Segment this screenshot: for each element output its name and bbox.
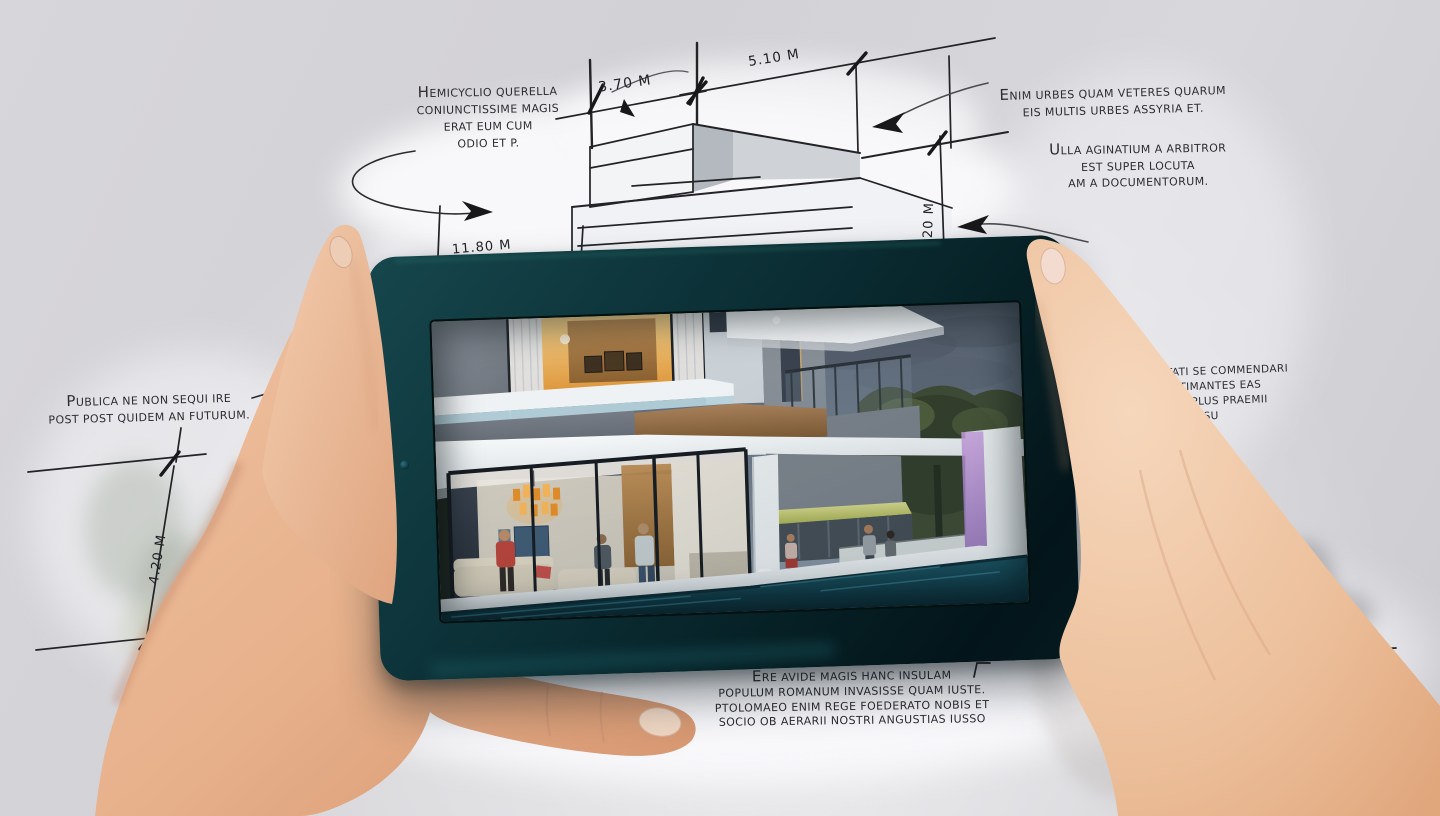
right-hand — [1027, 239, 1440, 816]
hands-front-layer — [0, 0, 1440, 816]
left-thumb — [262, 225, 397, 604]
photo-hands-holding-tablet-architecture-sketch: HEMICYCLIO QUERELLA CONIUNCTISSIME MAGIS… — [0, 0, 1440, 816]
